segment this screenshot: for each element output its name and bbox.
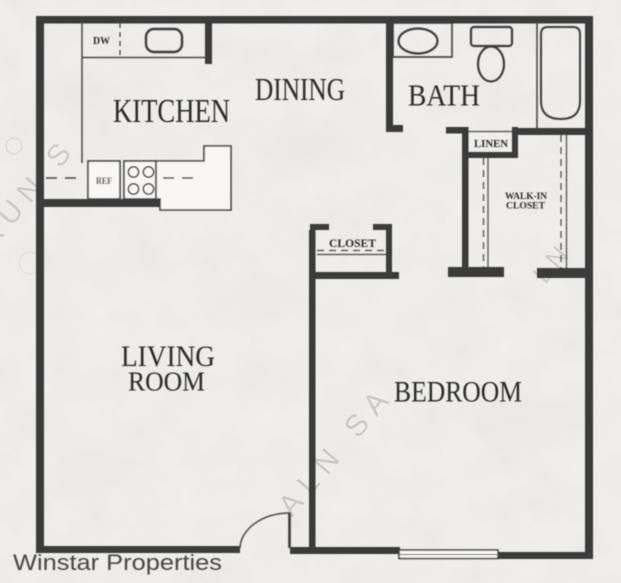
svg-text:WALK-IN: WALK-IN [505, 192, 547, 202]
svg-text:LINEN: LINEN [474, 139, 508, 150]
svg-text:REF: REF [96, 176, 112, 186]
svg-text:DINING: DINING [255, 72, 345, 107]
svg-text:BATH: BATH [408, 79, 480, 113]
svg-text:BEDROOM: BEDROOM [394, 377, 522, 409]
svg-text:DW: DW [93, 36, 110, 47]
svg-text:Winstar Properties: Winstar Properties [13, 550, 222, 575]
svg-text:CLOSET: CLOSET [506, 202, 546, 212]
svg-text:CLOSET: CLOSET [329, 236, 376, 250]
svg-text:KITCHEN: KITCHEN [113, 93, 230, 130]
svg-text:ROOM: ROOM [128, 367, 205, 397]
